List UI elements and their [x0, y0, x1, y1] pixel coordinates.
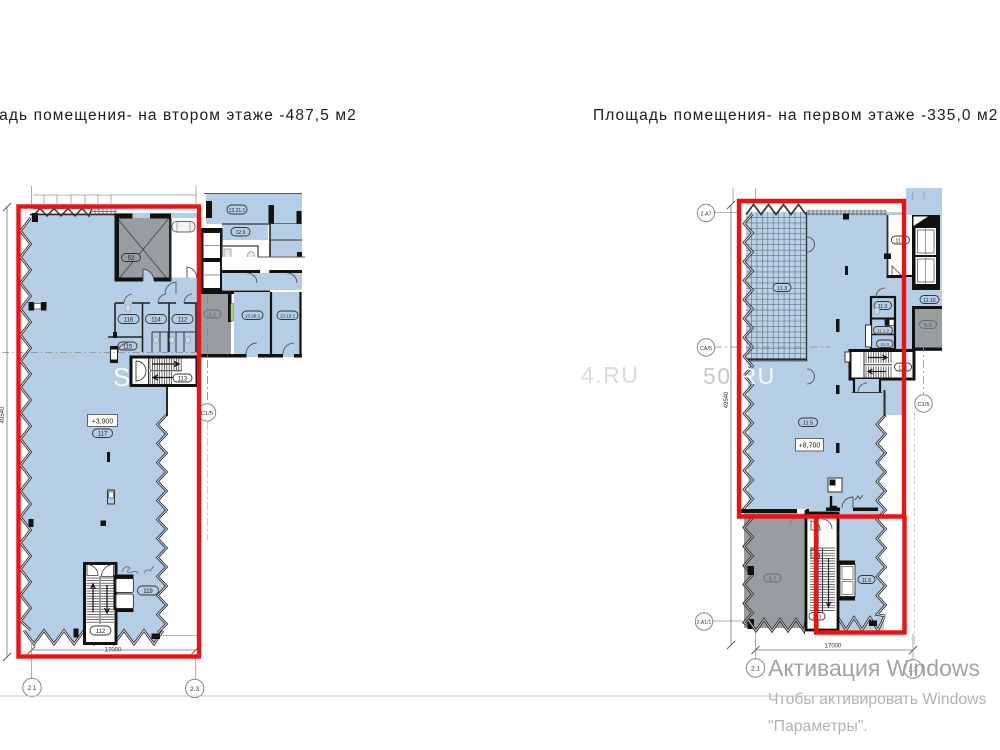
svg-text:49540: 49540	[724, 391, 730, 408]
svg-text:+8,700: +8,700	[799, 443, 821, 450]
svg-text:113: 113	[178, 377, 188, 383]
svg-text:17000: 17000	[825, 644, 842, 650]
svg-text:2.1: 2.1	[27, 685, 36, 692]
svg-text:119: 119	[143, 589, 153, 595]
svg-text:11.5: 11.5	[803, 421, 813, 427]
svg-text:112: 112	[178, 318, 188, 324]
svg-text:11.1.2: 11.1.2	[877, 329, 889, 334]
svg-text:11.6: 11.6	[862, 578, 872, 584]
svg-text:52: 52	[128, 256, 135, 262]
svg-text:S: S	[113, 362, 130, 392]
svg-text:С1/5: С1/5	[201, 411, 213, 417]
svg-text:116: 116	[124, 318, 134, 324]
svg-text:13.21.1: 13.21.1	[229, 208, 246, 214]
svg-text:2.А7: 2.А7	[700, 212, 711, 218]
svg-text:2.1: 2.1	[751, 666, 760, 673]
svg-text:+3,900: +3,900	[92, 419, 114, 426]
svg-text:13.19.1: 13.19.1	[280, 314, 296, 319]
svg-text:11.3: 11.3	[777, 286, 787, 292]
svg-text:49540: 49540	[0, 406, 6, 423]
svg-text:112: 112	[96, 629, 106, 635]
svg-text:117: 117	[98, 432, 108, 438]
svg-text:12.9: 12.9	[236, 230, 246, 236]
svg-text:С1/5: С1/5	[917, 402, 929, 408]
svg-text:2.3: 2.3	[190, 686, 199, 693]
svg-text:11.4: 11.4	[881, 342, 890, 347]
svg-text:СА/5: СА/5	[700, 346, 712, 352]
svg-text:5.7: 5.7	[769, 577, 777, 583]
svg-text:2.А1/1: 2.А1/1	[697, 620, 712, 626]
svg-text:13.20.1: 13.20.1	[245, 314, 261, 319]
svg-text:115: 115	[123, 345, 133, 351]
svg-text:17000: 17000	[105, 648, 122, 654]
svg-text:4.RU: 4.RU	[581, 362, 639, 388]
svg-text:114: 114	[151, 318, 161, 324]
svg-text:11.10: 11.10	[923, 298, 935, 304]
svg-text:5.1: 5.1	[209, 313, 217, 319]
svg-text:5.5: 5.5	[924, 323, 932, 329]
